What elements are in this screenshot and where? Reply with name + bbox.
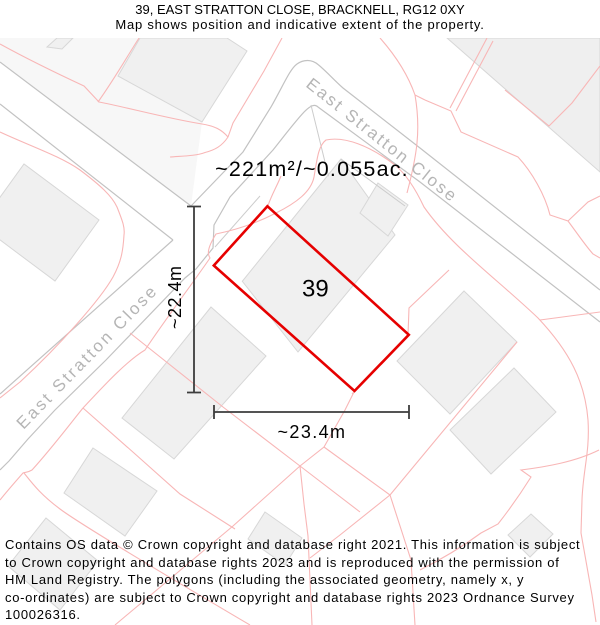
svg-text:~22.4m: ~22.4m (165, 265, 185, 329)
svg-text:~23.4m: ~23.4m (278, 422, 347, 442)
svg-text:~221m²/~0.055ac.: ~221m²/~0.055ac. (215, 157, 409, 181)
svg-text:39: 39 (302, 276, 329, 303)
